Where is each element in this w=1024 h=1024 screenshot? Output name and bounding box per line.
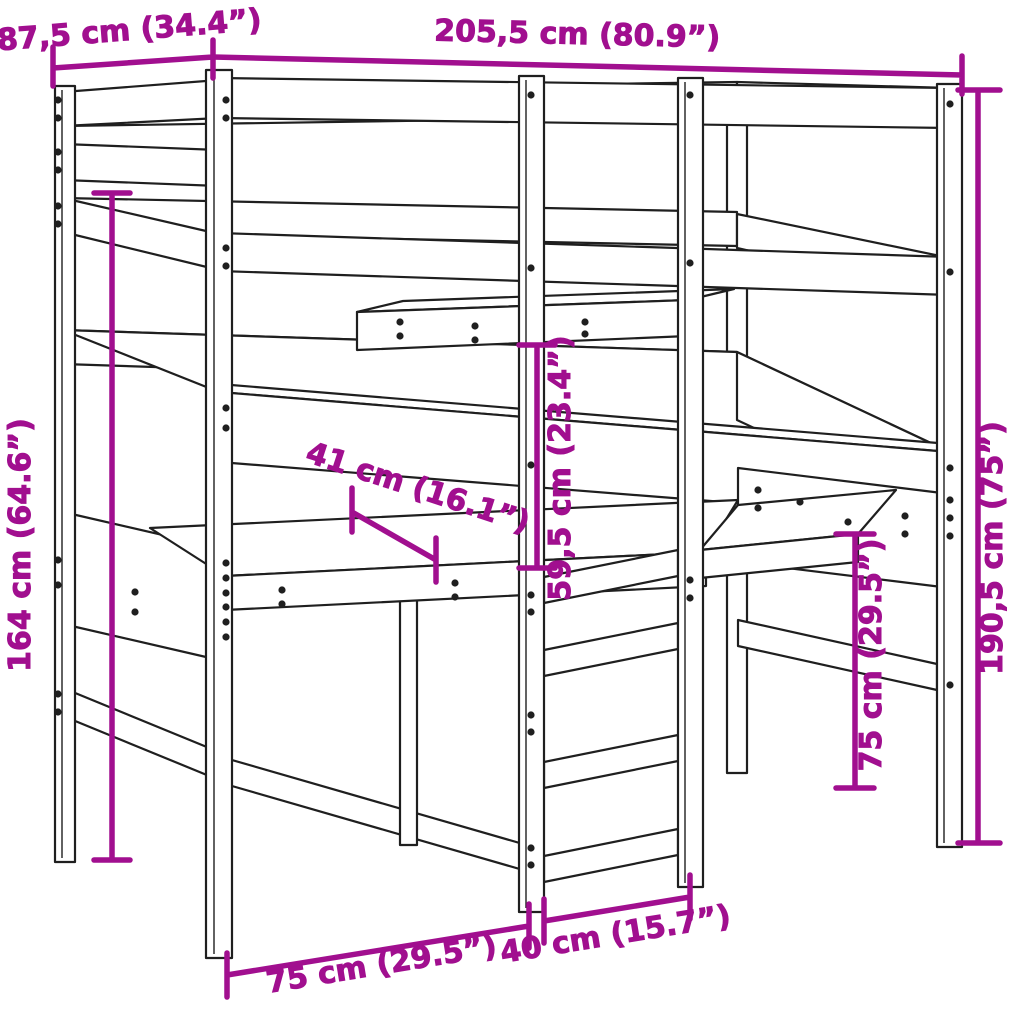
ladder-rung-2 <box>544 623 678 676</box>
dimension-label-width: 205,5 cm (80.9”) <box>434 14 721 56</box>
dimension-label-height-right: 190,5 cm (75”) <box>975 421 1010 675</box>
dimension-diagram: 87,5 cm (34.4”) 205,5 cm (80.9”) 164 cm … <box>0 0 1024 1024</box>
ladder-post-left <box>519 76 544 912</box>
left-desk-leg <box>400 560 417 845</box>
dimension-label-desk-height: 75 cm (29.5”) <box>854 539 889 772</box>
bed-post-rear-left <box>55 86 75 862</box>
ladder-rung-3 <box>544 735 678 788</box>
dimension-label-depth: 87,5 cm (34.4”) <box>0 3 263 59</box>
front-stretcher <box>225 758 530 872</box>
dimension-label-floor-span: 75 cm (29.5”) <box>264 929 499 1001</box>
ladder-rung-4 <box>544 829 678 882</box>
right-stretcher <box>738 620 937 690</box>
dimension-label-height-left: 164 cm (64.6”) <box>3 418 38 672</box>
loft-bed-drawing: 87,5 cm (34.4”) 205,5 cm (80.9”) 164 cm … <box>0 0 1024 1024</box>
front-rail-top <box>219 78 950 128</box>
ladder-post-right <box>678 78 703 887</box>
bed-post-front-left <box>206 70 232 958</box>
left-face-rail-top <box>63 80 219 126</box>
left-face-rail-middle <box>63 144 219 186</box>
left-stretcher <box>63 688 219 780</box>
dimension-label-shelf-clearance: 59,5 cm (23.4”) <box>543 335 578 600</box>
